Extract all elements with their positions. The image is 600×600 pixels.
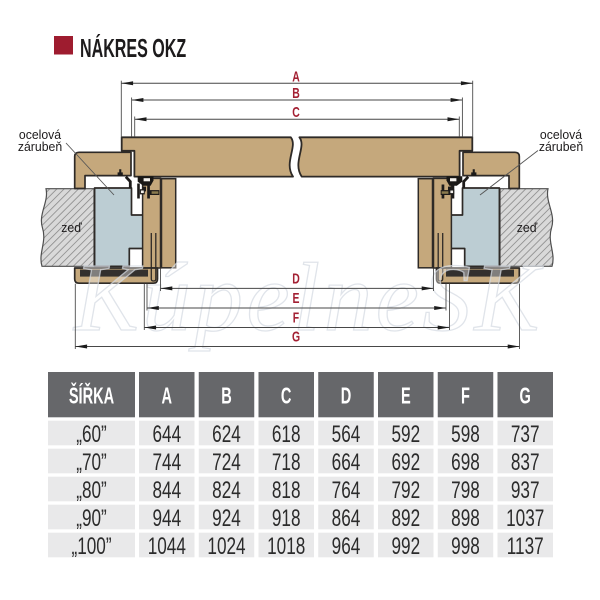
svg-text:D: D (292, 271, 300, 287)
svg-text:B: B (221, 383, 232, 409)
svg-text:„80”: „80” (76, 477, 107, 503)
svg-text:F: F (293, 310, 300, 326)
svg-text:598: 598 (451, 421, 480, 447)
svg-text:E: E (293, 291, 300, 307)
svg-text:818: 818 (272, 477, 301, 503)
svg-text:864: 864 (332, 505, 361, 531)
svg-text:zeď: zeď (61, 221, 82, 235)
svg-text:924: 924 (212, 505, 241, 531)
svg-text:837: 837 (511, 449, 540, 475)
svg-text:698: 698 (451, 449, 480, 475)
svg-text:998: 998 (451, 533, 480, 559)
svg-text:718: 718 (272, 449, 301, 475)
svg-text:592: 592 (391, 421, 420, 447)
svg-text:B: B (292, 85, 300, 101)
svg-text:664: 664 (332, 449, 361, 475)
svg-text:A: A (292, 69, 300, 85)
svg-text:792: 792 (391, 477, 420, 503)
svg-text:ŠÍŘKA: ŠÍŘKA (69, 381, 114, 410)
svg-text:624: 624 (212, 421, 241, 447)
svg-text:KúpelneSK: KúpelneSK (72, 244, 544, 351)
svg-text:1137: 1137 (507, 533, 544, 559)
svg-text:744: 744 (152, 449, 181, 475)
svg-text:zárubeň: zárubeň (539, 140, 583, 154)
svg-text:798: 798 (451, 477, 480, 503)
svg-text:NÁKRES OKZ: NÁKRES OKZ (80, 33, 186, 63)
svg-text:1044: 1044 (148, 533, 186, 559)
svg-text:824: 824 (212, 477, 241, 503)
svg-text:zárubeň: zárubeň (18, 140, 62, 154)
svg-text:„70”: „70” (76, 449, 107, 475)
svg-text:737: 737 (511, 421, 540, 447)
svg-text:944: 944 (152, 505, 181, 531)
svg-text:644: 644 (152, 421, 181, 447)
svg-text:724: 724 (212, 449, 241, 475)
svg-text:„60”: „60” (76, 421, 107, 447)
svg-text:E: E (401, 383, 411, 409)
svg-text:692: 692 (391, 449, 420, 475)
svg-text:844: 844 (152, 477, 181, 503)
svg-text:„90”: „90” (76, 505, 107, 531)
svg-text:1024: 1024 (207, 533, 245, 559)
svg-text:A: A (162, 383, 173, 409)
svg-text:564: 564 (332, 421, 361, 447)
svg-text:1037: 1037 (506, 505, 544, 531)
svg-text:„100”: „100” (71, 533, 111, 559)
svg-text:1018: 1018 (267, 533, 305, 559)
svg-text:C: C (281, 383, 292, 409)
svg-text:zeď: zeď (517, 221, 538, 235)
svg-text:898: 898 (451, 505, 480, 531)
svg-text:G: G (520, 383, 531, 409)
svg-text:D: D (341, 383, 352, 409)
svg-text:C: C (292, 105, 300, 121)
svg-text:964: 964 (332, 533, 361, 559)
svg-text:937: 937 (511, 477, 540, 503)
svg-text:918: 918 (272, 505, 301, 531)
svg-text:992: 992 (391, 533, 420, 559)
svg-text:892: 892 (391, 505, 420, 531)
svg-text:618: 618 (272, 421, 301, 447)
svg-text:F: F (461, 383, 470, 409)
svg-text:764: 764 (332, 477, 361, 503)
svg-text:G: G (292, 329, 300, 345)
